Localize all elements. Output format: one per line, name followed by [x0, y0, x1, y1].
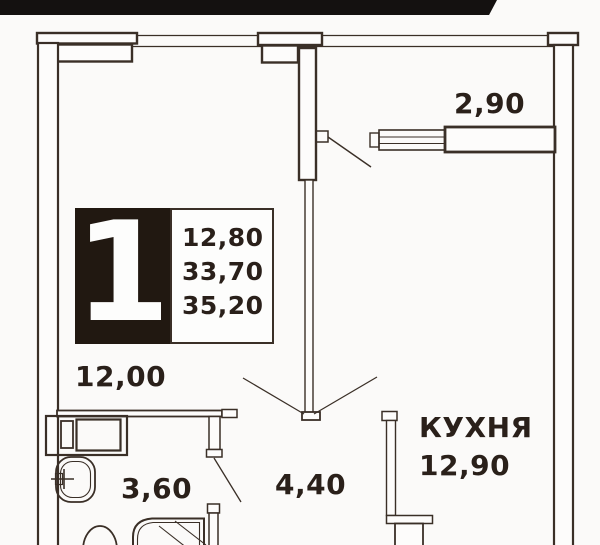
area-stat-living: 33,70 — [182, 255, 272, 289]
bathroom-door-swing — [214, 458, 241, 502]
shower-icon — [133, 519, 206, 545]
bathroom-area-label: 3,60 — [121, 474, 192, 505]
floorplan-canvas: 1 12,80 33,70 35,20 2,90 12,00 КУХНЯ 12,… — [0, 0, 600, 545]
kitchen-area-label: 12,90 — [419, 451, 510, 482]
sink-icon — [51, 457, 95, 502]
hallway-area-label: 4,40 — [275, 470, 346, 501]
loggia-door — [316, 131, 371, 167]
area-stat-room: 12,80 — [182, 221, 272, 255]
area-stat-total: 35,20 — [182, 289, 272, 323]
loggia-partition-wall — [299, 48, 320, 420]
kitchen-name-label: КУХНЯ — [419, 413, 533, 444]
area-stats-box: 12,80 33,70 35,20 — [170, 208, 274, 344]
toilet-icon — [83, 526, 117, 545]
exterior-wall-right — [554, 45, 573, 545]
loggia-area-label: 2,90 — [454, 89, 525, 120]
loggia-wall-segment — [445, 127, 555, 152]
plan-number: 1 — [74, 204, 170, 342]
living-room-area-label: 12,00 — [75, 362, 166, 393]
exterior-wall-left — [38, 43, 58, 545]
loggia-window — [370, 130, 445, 150]
apartment-info-block: 1 12,80 33,70 35,20 — [75, 208, 274, 344]
plan-number-badge: 1 — [75, 208, 170, 344]
window-glass-lines — [132, 36, 556, 47]
